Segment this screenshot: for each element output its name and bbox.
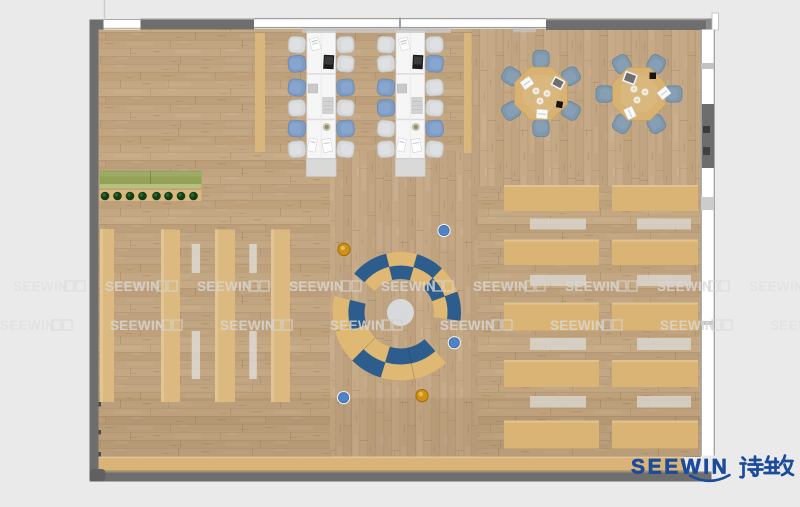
svg-text:SEEWIN: SEEWIN	[0, 318, 55, 333]
svg-text:SEEWIN: SEEWIN	[197, 279, 252, 294]
svg-text:SEEWIN: SEEWIN	[631, 456, 729, 479]
svg-text:SEEWIN: SEEWIN	[110, 318, 165, 333]
svg-text:SEEWIN: SEEWIN	[749, 279, 800, 294]
svg-text:SEEWIN: SEEWIN	[473, 279, 528, 294]
svg-text:SEEWIN: SEEWIN	[13, 279, 68, 294]
svg-text:SEEWIN: SEEWIN	[550, 318, 605, 333]
svg-text:SEEWIN: SEEWIN	[220, 318, 275, 333]
svg-text:SEEWIN: SEEWIN	[565, 279, 620, 294]
svg-text:SEEWIN: SEEWIN	[770, 318, 800, 333]
svg-text:SEEWIN: SEEWIN	[440, 318, 495, 333]
svg-text:SEEWIN: SEEWIN	[657, 279, 712, 294]
svg-text:SEEWIN: SEEWIN	[105, 279, 160, 294]
svg-text:SEEWIN: SEEWIN	[289, 279, 344, 294]
svg-text:SEEWIN: SEEWIN	[660, 318, 715, 333]
svg-text:SEEWIN: SEEWIN	[381, 279, 436, 294]
svg-text:SEEWIN: SEEWIN	[330, 318, 385, 333]
